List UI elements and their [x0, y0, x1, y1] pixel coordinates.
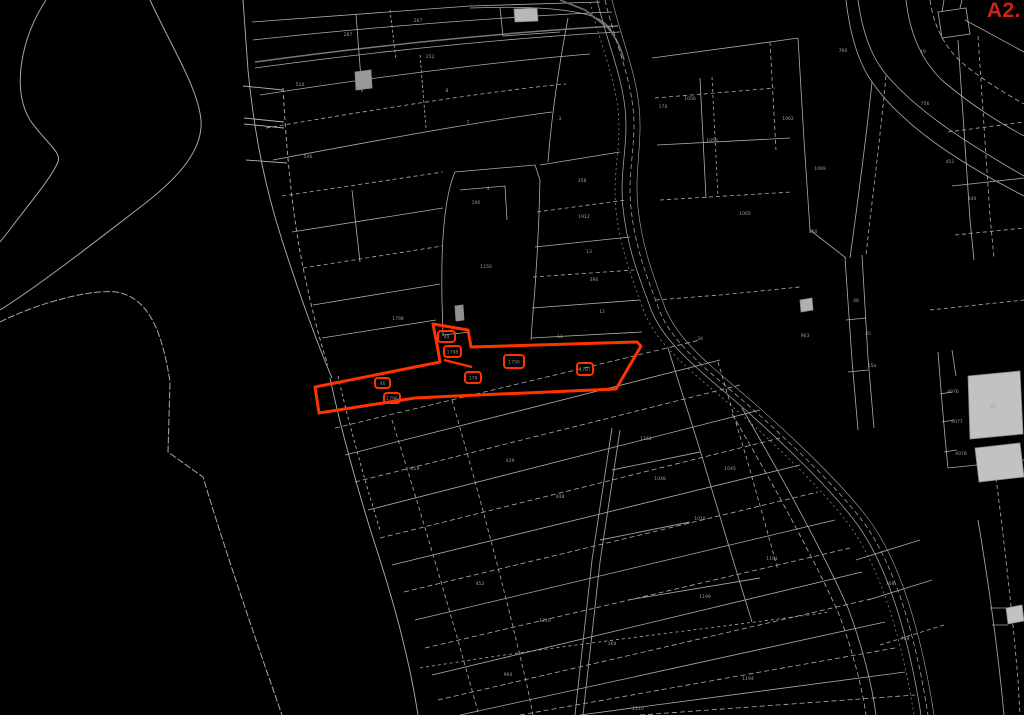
parcel-number: 448: [556, 494, 565, 500]
highlighted-parcel-number: 1787: [579, 367, 591, 373]
map-sheet-label: A2.: [987, 0, 1021, 21]
parcel-number: 358: [578, 178, 587, 184]
parcel-number: 4077: [951, 419, 963, 425]
parcel-number: 1798: [392, 316, 404, 322]
map-canvas[interactable]: 49179817901787178461796 5105462872671528…: [0, 0, 1024, 715]
parcel-number: 1048: [654, 476, 666, 482]
parcel-number: 169: [608, 641, 617, 647]
parcel-number: 4: [487, 186, 490, 192]
parcel-number: 964: [504, 672, 513, 678]
parcel-number: 1019: [694, 516, 706, 522]
parcel-number: 1069: [814, 166, 826, 172]
parcel-number: 340: [968, 196, 977, 202]
parcel-number: 34: [697, 336, 703, 342]
parcel-number: 768: [886, 581, 895, 587]
highlighted-parcel-number: 1798: [447, 349, 459, 355]
parcel-number: 4076: [947, 389, 959, 395]
parcel-number: 45: [865, 331, 871, 337]
parcel-number: 1062: [782, 116, 794, 122]
parcel-number: 4078: [955, 451, 967, 457]
map-background: [0, 0, 1024, 715]
parcel-number: 176: [659, 104, 668, 110]
parcel-number: 7: [467, 120, 470, 126]
parcel-number: 1191: [766, 556, 778, 562]
parcel-number: 769: [901, 636, 910, 642]
parcel-number: 1216: [539, 618, 551, 624]
building-stream-side: [800, 298, 813, 312]
parcel-number: 15a: [868, 363, 877, 369]
parcel-number: 12: [599, 309, 605, 315]
parcel-number: 1045: [724, 466, 736, 472]
parcel-number: 760: [839, 48, 848, 54]
parcel-number: 963: [801, 333, 810, 339]
parcel-number: 1150: [480, 264, 492, 270]
building-top: [514, 8, 538, 22]
parcel-number: 439: [506, 458, 515, 464]
parcel-number: 1065: [739, 211, 751, 217]
parcel-number: 13: [586, 249, 592, 255]
highlighted-parcel-number: 178: [469, 375, 478, 381]
building-fan-small: [355, 70, 372, 90]
building-lower: [975, 443, 1024, 482]
parcel-number: 1194: [742, 676, 754, 682]
parcel-number: 1199: [699, 594, 711, 600]
parcel-number: 19: [920, 49, 926, 55]
cadastral-map: 49179817901787178461796 5105462872671528…: [0, 0, 1024, 715]
parcel-number: 1912: [578, 214, 590, 220]
parcel-number: 190: [472, 200, 481, 206]
parcel-number: 452: [476, 581, 485, 587]
highlighted-parcel-number: 49: [444, 334, 450, 340]
highlighted-parcel-number: 1796: [386, 396, 398, 402]
parcel-number: 1056: [684, 96, 696, 102]
parcel-number: 546: [304, 154, 313, 160]
parcel-number: 1059: [706, 138, 718, 144]
parcel-number: 510: [296, 82, 305, 88]
parcel-number: 93: [990, 404, 996, 410]
parcel-number: 756: [921, 101, 930, 107]
highlighted-parcel-number: 1790: [508, 359, 520, 365]
parcel-number: 287: [344, 32, 353, 38]
parcel-number: 152: [426, 54, 435, 60]
building-right-edge: [1006, 605, 1024, 624]
parcel-number: 451: [946, 159, 955, 165]
parcel-number: 8: [446, 88, 449, 94]
parcel-number: 390: [590, 277, 599, 283]
parcel-number: 460: [809, 229, 818, 235]
parcel-number: 1210: [632, 706, 644, 712]
highlighted-parcel-number: 46: [380, 381, 386, 387]
parcel-number: 48: [853, 298, 859, 304]
parcel-number: 267: [414, 18, 423, 24]
building-dark-small: [455, 305, 464, 321]
parcel-number: 419: [411, 466, 420, 472]
parcel-number: 3: [559, 116, 562, 122]
parcel-number: 1164: [640, 436, 652, 442]
parcel-number: 11: [557, 334, 563, 340]
